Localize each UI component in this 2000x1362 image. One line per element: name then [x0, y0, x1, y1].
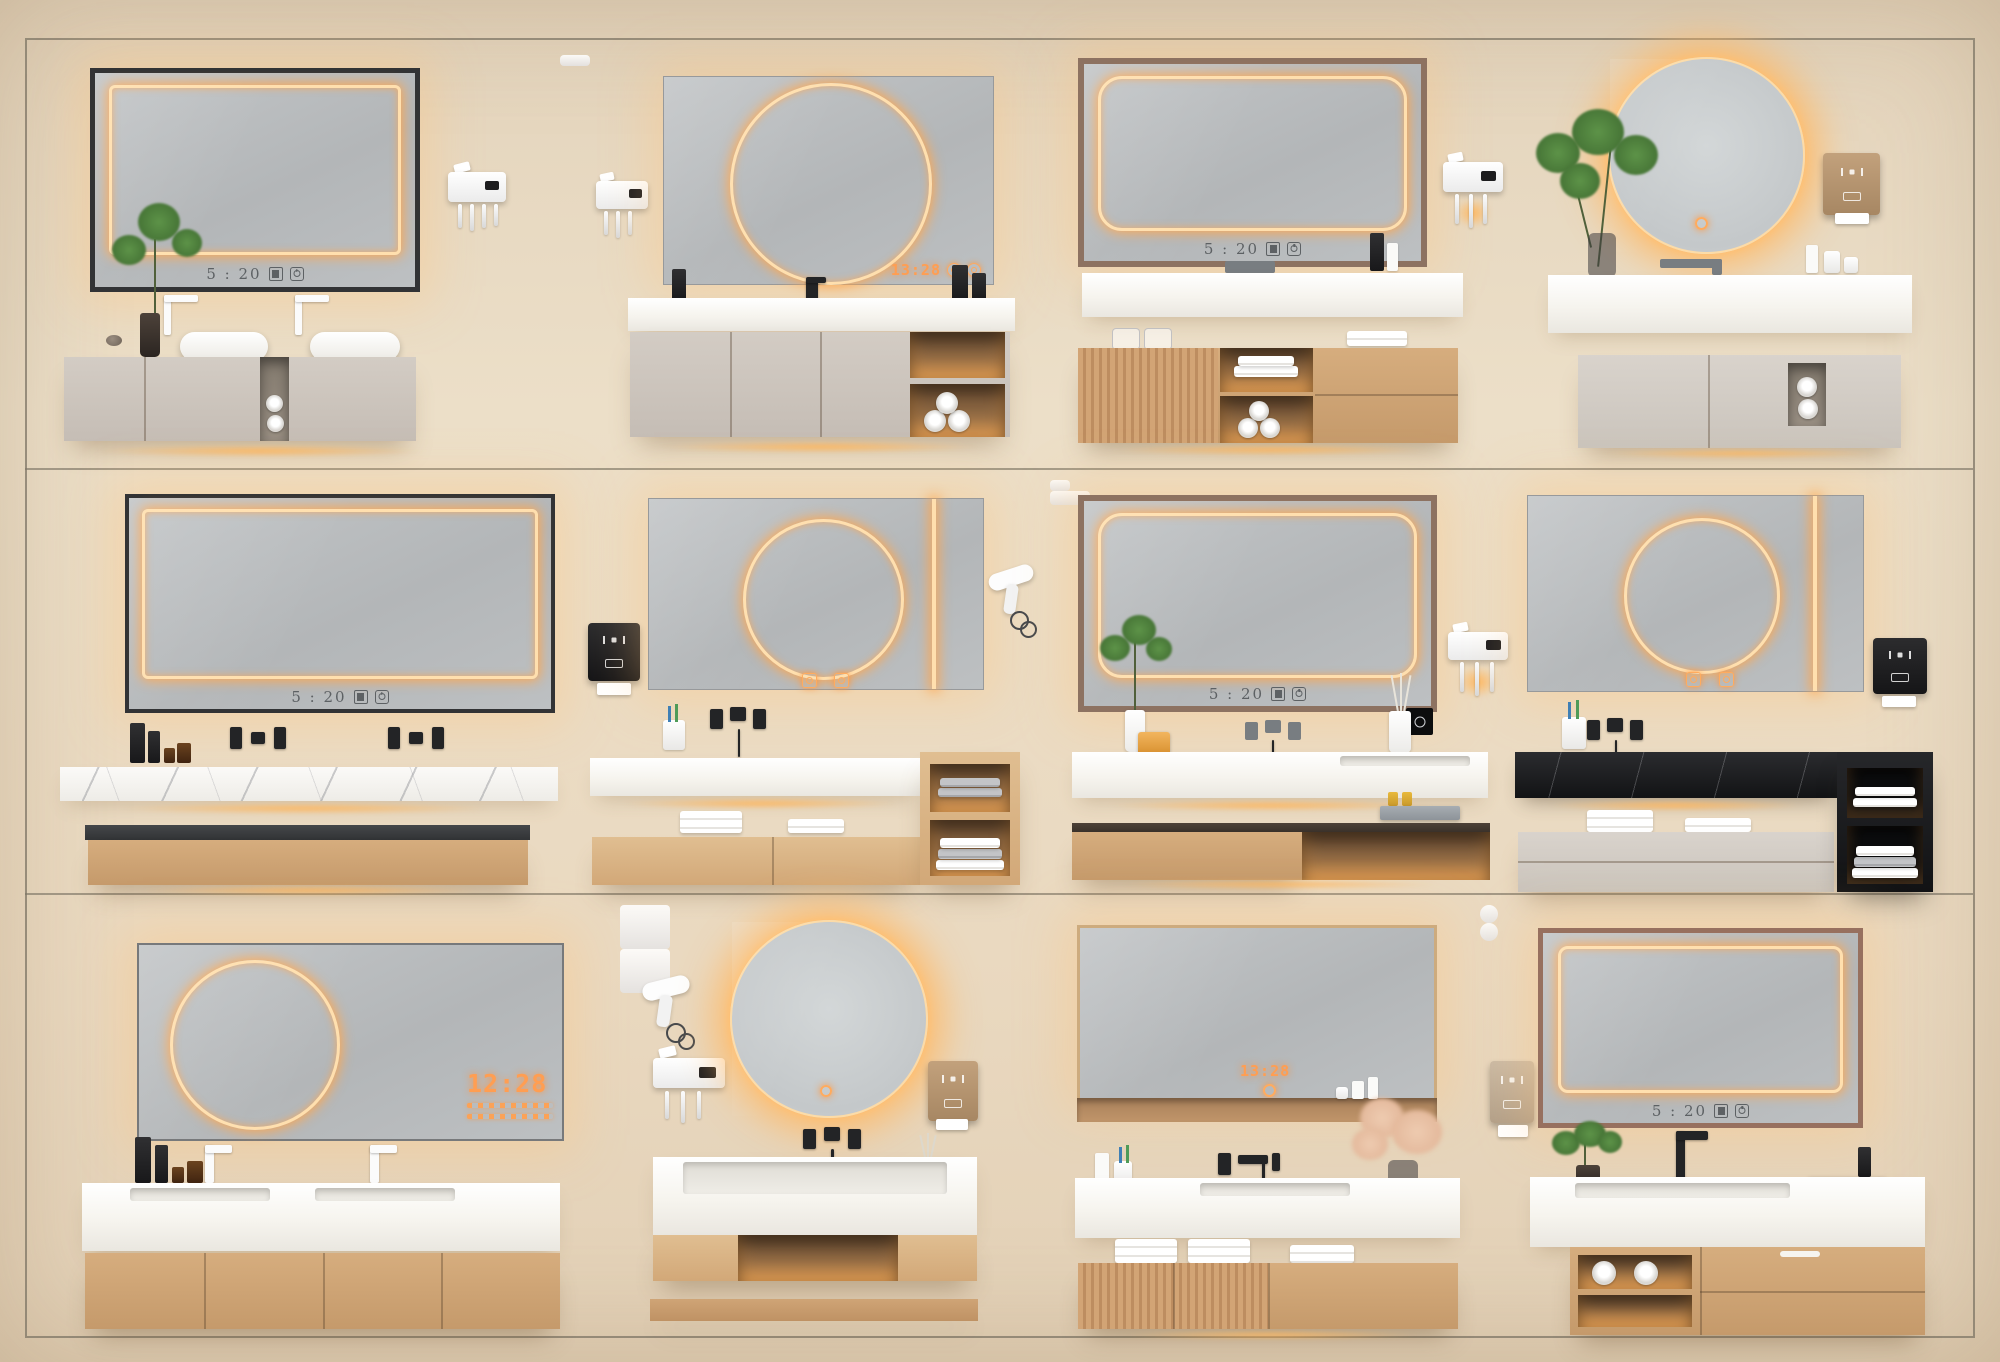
towel-folded [620, 905, 670, 949]
door-seam [144, 357, 146, 441]
display-icon [269, 267, 283, 281]
sink-inset [1340, 756, 1470, 766]
towel-stack [1587, 810, 1653, 832]
display-icon [1714, 1104, 1728, 1118]
toothbrush [616, 211, 620, 238]
faucet-black-spout [1676, 1131, 1708, 1140]
towel-niche [260, 357, 289, 441]
row-divider-1 [25, 468, 1973, 470]
holder-body [653, 1058, 725, 1088]
vanity-set-r2c1: 5 : 20 [55, 480, 565, 890]
toothbrush [681, 1091, 685, 1123]
vanity-cabinet [85, 1253, 560, 1329]
faucet-handle [1630, 720, 1643, 740]
towel-stack [1855, 787, 1915, 796]
sink-inset [1575, 1183, 1790, 1198]
clock-time: 5 : 20 [1204, 240, 1259, 258]
led-circle [170, 960, 340, 1130]
towel-roll [266, 395, 283, 412]
diffuser-stick [1403, 675, 1412, 715]
led-vertical-bar [1813, 496, 1817, 691]
towel-stack [1290, 1245, 1354, 1263]
dryer-handle [1003, 583, 1019, 614]
mirror-r3c1: 12:28 [137, 943, 564, 1141]
towel-roll [1480, 905, 1498, 923]
mirror-clock: 5 : 20 [1543, 1102, 1858, 1120]
towel-stack [1685, 818, 1751, 832]
dispenser-slot [1843, 192, 1861, 201]
mirror-clock: 12:28 [467, 1069, 547, 1098]
towel-niche [1788, 363, 1826, 426]
touch-button [820, 1085, 832, 1097]
sink-inset [683, 1162, 947, 1194]
clock-time: 5 : 20 [291, 688, 346, 706]
mirror-r2c1: 5 : 20 [125, 494, 555, 713]
basin-counter [653, 1157, 977, 1235]
holder-screen [629, 189, 642, 198]
under-cabinet-glow [135, 886, 485, 895]
glass-jar [1144, 328, 1172, 350]
showroom-wall: 5 : 20 [0, 0, 2000, 1362]
display-icon [1266, 242, 1280, 256]
plant-foliage [1146, 637, 1172, 661]
faucet-handle [274, 727, 286, 749]
faucet-spout [409, 732, 423, 744]
towel-stack [680, 811, 742, 833]
faucet-hose [738, 729, 740, 757]
touch-icon [1719, 672, 1734, 687]
faucet-grey [1225, 261, 1275, 273]
faucet-right-spout [295, 295, 329, 302]
holder-screen [699, 1067, 716, 1078]
wall-faucet [1245, 720, 1301, 742]
towel-roll [1260, 418, 1280, 438]
door-seam [1268, 1263, 1270, 1329]
faucet-grey-head [1712, 259, 1722, 275]
toothbrush [1460, 662, 1464, 692]
vanity-cabinet [1578, 355, 1901, 448]
under-counter-glow [115, 803, 495, 814]
mirror-r2c2 [648, 498, 984, 690]
holder-screen [485, 181, 499, 190]
drawer-seam [1315, 394, 1458, 396]
toothbrush-cup [663, 720, 685, 750]
under-cabinet-glow [660, 441, 980, 453]
plant-foliage [1560, 163, 1600, 199]
faucet-handle [803, 1129, 816, 1149]
power-icon [375, 690, 389, 704]
mirror-clock: 5 : 20 [129, 688, 551, 706]
drawer-seam [1518, 861, 1834, 863]
wall-faucet [803, 1127, 861, 1149]
power-touch-icon [1263, 1084, 1276, 1097]
mirror-clock: 13:28 [1240, 1062, 1290, 1080]
toothbrush-blue [668, 706, 671, 722]
touch-icon [802, 673, 817, 688]
paper-dispenser [1490, 1061, 1534, 1123]
door-seam [772, 837, 774, 885]
toothbrush [1483, 194, 1487, 224]
menu-row-icons [467, 1103, 553, 1108]
counter-shelf [1082, 273, 1463, 317]
soap-dispenser [1873, 638, 1927, 694]
toothbrush-holder [596, 177, 648, 247]
paper-sheet [1882, 696, 1916, 707]
base-plinth [650, 1299, 978, 1321]
faucet-handle [388, 727, 400, 749]
vanity-cabinet [653, 1235, 977, 1281]
led-circle [743, 519, 904, 680]
touch-button [1695, 217, 1708, 230]
counter [590, 758, 920, 796]
faucet-handle [432, 727, 444, 749]
towel-roll [1238, 418, 1258, 438]
drawer-seam [1700, 1291, 1925, 1293]
toothbrush [665, 1091, 669, 1119]
towel-stack [940, 838, 1000, 848]
tall-plant [1530, 105, 1680, 275]
toothbrush-holder [653, 1053, 725, 1125]
vanity-set-r2c3: 5 : 20 [1050, 480, 1520, 890]
amber-jar [187, 1161, 203, 1183]
towel-grey [1854, 857, 1916, 867]
door-seam [323, 1253, 325, 1329]
under-cabinet-glow [1120, 880, 1440, 889]
pampas-plume [1352, 1128, 1388, 1160]
toothbrush [482, 204, 486, 228]
plant-foliage [1614, 135, 1658, 175]
pump-bottle-black [135, 1137, 151, 1183]
bottle-white [1806, 245, 1818, 273]
sensor-icon [1501, 1076, 1523, 1084]
diffuser-stick [1391, 675, 1400, 715]
towel-roll [1798, 399, 1818, 419]
towel-stack [1115, 1239, 1177, 1263]
dispenser-slot [944, 1099, 962, 1108]
faucet-handle [230, 727, 242, 749]
clock-time: 12:28 [467, 1069, 547, 1098]
marble-counter [60, 767, 558, 801]
faucet-spout [251, 732, 265, 744]
door-seam [1708, 355, 1710, 448]
open-shelf-bottom [1220, 396, 1313, 443]
toothbrush-blue [1119, 1147, 1122, 1163]
vanity-cabinet [592, 837, 920, 885]
faucet-handle [753, 709, 766, 729]
toothbrush [1455, 194, 1459, 224]
hair-dryer [640, 971, 698, 1051]
amenity-tray [1380, 806, 1460, 820]
holder-body [596, 181, 648, 209]
shelf-tower [920, 752, 1020, 885]
led-circle [730, 83, 932, 285]
towel-stack [1238, 356, 1294, 366]
amber-jar [177, 743, 191, 763]
mirror-r1c2: 13:28 [663, 76, 994, 285]
wall-faucet [710, 707, 766, 729]
touch-icon [1686, 672, 1701, 687]
counter [1075, 1178, 1460, 1238]
vanity-cabinet [64, 357, 416, 441]
clock-time: 5 : 20 [1209, 685, 1264, 703]
vanity-cabinet [630, 332, 1010, 437]
faucet-spout [824, 1127, 840, 1141]
soap-bottle-black [672, 269, 686, 301]
lighted-open-shelf [1302, 832, 1490, 880]
vanity-cabinet [1078, 1263, 1458, 1329]
mirror-r3c4: 5 : 20 [1538, 928, 1863, 1128]
dryer-cord [1020, 621, 1037, 638]
faucet-handle [848, 1129, 861, 1149]
clock-time: 13:28 [1240, 1062, 1290, 1080]
counter [1530, 1177, 1925, 1247]
power-icon [1735, 1104, 1749, 1118]
tower-shelf-top [930, 764, 1010, 812]
faucet-white-right-spout [370, 1145, 397, 1153]
holder-body [448, 172, 506, 202]
small-jar [1844, 257, 1858, 273]
door-seam [204, 1253, 206, 1329]
vanity-set-r1c1: 5 : 20 [60, 55, 490, 445]
faucet-black-spout [806, 277, 826, 283]
faucet-stream [1262, 1161, 1265, 1179]
vanity-set-r3c4: 5 : 20 [1480, 905, 1950, 1337]
towel-roll [1249, 401, 1269, 421]
open-center [738, 1235, 898, 1281]
vanity-set-r3c1: 12:28 [60, 905, 570, 1337]
mirror-r3c3: 13:28 [1077, 925, 1437, 1101]
toothbrush [628, 211, 632, 235]
towel-stack [1234, 366, 1298, 377]
plant-foliage [1598, 1131, 1622, 1153]
towel-stack [1853, 798, 1917, 807]
sink-inset [1200, 1183, 1350, 1196]
clock-time: 5 : 20 [1652, 1102, 1707, 1120]
toothbrush-blue [1568, 702, 1571, 719]
towel-stack [1856, 846, 1914, 856]
sensor-icon [942, 1075, 964, 1083]
sink-inset-left [130, 1188, 270, 1201]
display-icon [354, 690, 368, 704]
toothbrush-cup [1824, 251, 1840, 273]
vanity-cabinet [1570, 1247, 1925, 1335]
led-circle [1624, 518, 1780, 674]
amber-jar [164, 748, 175, 763]
towel-grey [938, 788, 1002, 797]
towel-stack [1852, 868, 1918, 878]
vanity-cabinet [88, 840, 528, 885]
faucet-left-spout [164, 295, 198, 302]
dispenser-slot [1891, 673, 1909, 682]
touch-icon [834, 673, 849, 688]
paper-sheet [597, 683, 631, 695]
vanity-set-r1c3: 5 : 20 [1040, 45, 1520, 455]
paper-sheet [1498, 1125, 1528, 1137]
plant-vase [140, 313, 160, 357]
faucet-white-left-spout [205, 1145, 232, 1153]
tower-shelf-bottom [1847, 826, 1923, 884]
tower-shelf-top [1847, 768, 1923, 818]
counter [1072, 752, 1488, 798]
open-shelf-bottom [910, 384, 1005, 437]
toothbrush [1469, 194, 1473, 228]
toothbrush [458, 204, 462, 228]
under-cabinet-glow [95, 445, 425, 457]
cabinet-top-slab [1072, 823, 1490, 832]
vanity-set-r2c4 [1490, 480, 1950, 895]
vanity-set-r3c3: 13:28 [1050, 905, 1470, 1337]
faucet-handle [1218, 1153, 1231, 1175]
dispenser-slot [1503, 1100, 1521, 1109]
counter [1548, 275, 1912, 333]
vanity-cabinet [1078, 348, 1458, 443]
display-icon [1271, 687, 1285, 701]
faucet-spout [1607, 718, 1623, 732]
wall-faucet [1587, 718, 1643, 740]
pump-bottle-black [148, 731, 160, 763]
faucet-handle [1245, 722, 1258, 740]
towel-roll [1480, 923, 1498, 941]
plant-foliage [112, 235, 146, 265]
menu-row-icons [467, 1114, 553, 1119]
under-counter-glow [620, 798, 900, 809]
sink-inset-right [315, 1188, 455, 1201]
tower-shelf-bottom [930, 820, 1010, 876]
towel-grey [938, 849, 1002, 859]
vanity-cabinet [1072, 823, 1490, 880]
faucet-spout [1265, 720, 1281, 733]
wall-faucet-right [388, 727, 444, 749]
faucet-spout [730, 707, 746, 721]
door-seam [1173, 1263, 1175, 1329]
drawer-handle [1780, 1251, 1820, 1257]
towel-stack [936, 860, 1004, 870]
sensor-icon [1889, 651, 1911, 659]
paper-dispenser [928, 1061, 978, 1121]
vanity-set-r2c2 [575, 480, 1045, 890]
towel-roll [936, 392, 958, 414]
led-vertical-bar [932, 499, 936, 689]
toothbrush-green [675, 704, 678, 722]
paper-roll [1634, 1261, 1658, 1285]
towel-stack [788, 819, 844, 833]
clock-time: 13:28 [891, 261, 941, 279]
mirror-r2c4 [1527, 495, 1864, 692]
soap-bottle-black [1370, 233, 1384, 271]
dryer-handle [656, 994, 673, 1027]
soap-dispenser [588, 623, 640, 681]
small-jar [1336, 1087, 1348, 1099]
towel-grey [940, 778, 1000, 787]
vanity-set-r1c4 [1490, 45, 1950, 455]
lighted-shelf-bottom [1578, 1295, 1692, 1327]
led-strip [142, 509, 538, 679]
led-strip [1558, 946, 1843, 1093]
towel-roll [560, 55, 590, 66]
amenity-bottle [1402, 792, 1412, 806]
pebble [106, 335, 122, 346]
towel-stack [1347, 331, 1407, 346]
toothbrush-holder [448, 167, 506, 237]
dispenser-slot [605, 659, 623, 668]
towel-roll [948, 410, 970, 432]
under-counter-glow [1545, 800, 1805, 811]
vanity-set-r3c2 [620, 905, 1000, 1330]
power-icon [1287, 242, 1301, 256]
towel-roll [1797, 377, 1817, 397]
plant-foliage [172, 229, 202, 257]
toothbrush [604, 211, 608, 235]
faucet-handle [1288, 722, 1301, 740]
counter [628, 298, 1015, 331]
under-cabinet-glow [1600, 449, 1880, 458]
cabinet-top-slab [85, 825, 530, 840]
door-seam [730, 332, 732, 437]
toothbrush [494, 204, 498, 226]
paper-dispenser [1823, 153, 1880, 215]
power-icon [1292, 687, 1306, 701]
paper-sheet [936, 1119, 968, 1130]
sensor-icon [1841, 168, 1863, 176]
lighted-shelf-top [1578, 1255, 1692, 1289]
toothbrush-cup [1562, 717, 1586, 749]
pump-bottle-white [1387, 243, 1398, 271]
diffuser-stick [1400, 673, 1402, 715]
open-shelf-top [910, 332, 1005, 378]
open-shelf-top [1220, 348, 1313, 392]
paper-roll [1592, 1261, 1616, 1285]
hair-dryer [988, 563, 1044, 641]
reed-diffuser [1380, 675, 1420, 753]
pump-bottle-black [155, 1145, 168, 1183]
faucet-handle [1272, 1153, 1280, 1171]
toothbrush [1475, 662, 1479, 696]
towel-roll [267, 415, 284, 432]
towel-roll [1050, 480, 1070, 491]
dryer-cord [678, 1033, 695, 1050]
paper-sheet [1835, 213, 1869, 224]
toothbrush-green [1126, 1145, 1129, 1163]
wall-faucet-left [230, 727, 286, 749]
toothbrush [470, 204, 474, 231]
diffuser-vase [1389, 711, 1411, 753]
cabinet-door [1072, 832, 1302, 880]
led-strip [1098, 76, 1407, 231]
faucet-handle [710, 709, 723, 729]
toothbrush-green [1576, 700, 1579, 719]
glass-jar [1112, 328, 1140, 350]
vanity-set-r1c2: 13:28 [560, 55, 1020, 455]
amenity-bottle [1388, 792, 1398, 806]
under-cabinet-glow [1110, 445, 1430, 455]
amber-jar [172, 1167, 184, 1183]
door-seam [441, 1253, 443, 1329]
fluted-doors [1078, 348, 1218, 443]
pump-bottle-black [1858, 1147, 1871, 1177]
faucet-handle [1587, 720, 1600, 740]
toothbrush [697, 1091, 701, 1119]
plant-vase [1588, 233, 1616, 277]
pampas-plume [1392, 1110, 1442, 1154]
wall-faucet [1218, 1151, 1280, 1179]
plant-stem [1134, 639, 1136, 719]
black-shelf-tower [1837, 752, 1933, 892]
double-sink-counter [82, 1183, 560, 1251]
pump-bottle-black [130, 723, 145, 763]
black-marble-counter [1515, 752, 1837, 798]
under-cabinet-glow [1120, 1331, 1420, 1339]
power-icon [290, 267, 304, 281]
